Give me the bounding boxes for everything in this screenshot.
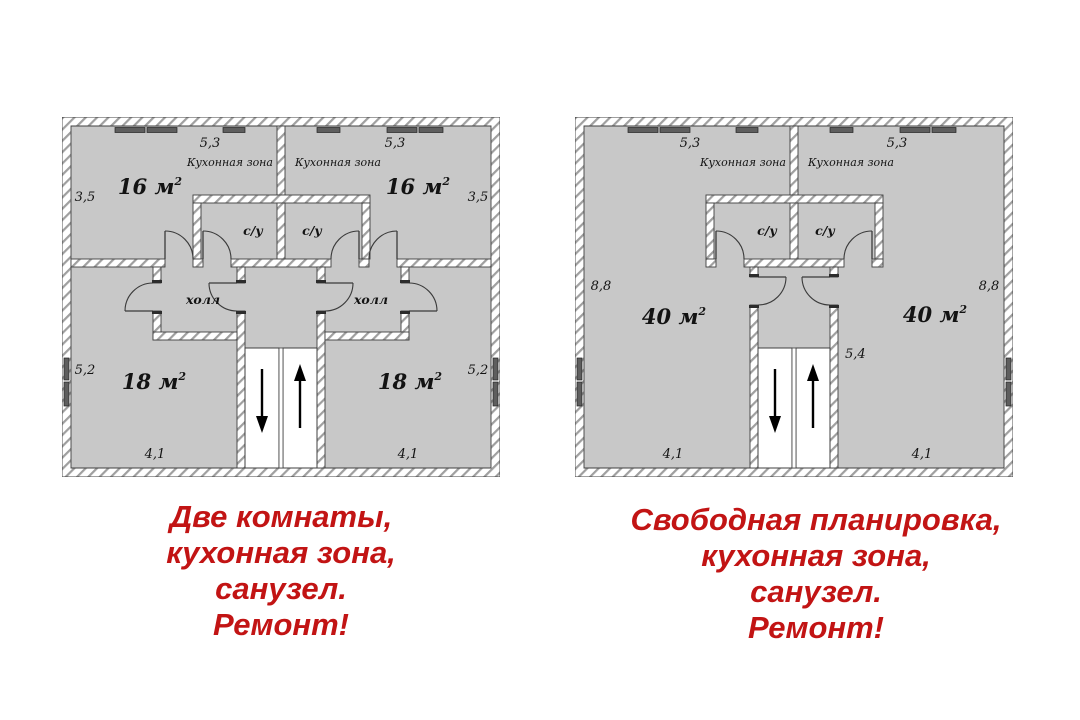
right-plan-caption: Свободная планировка, кухонная зона, сан…	[586, 502, 1046, 646]
room-area-label: 18 м2	[122, 369, 187, 394]
dim-label: 5,3	[200, 136, 221, 151]
caption-line: санузел.	[586, 574, 1046, 610]
dim-label: 3,5	[75, 190, 96, 205]
kitchen-zone-label: Кухонная зона	[699, 156, 786, 169]
dim-label: 5,3	[887, 136, 908, 151]
bathroom-label: с/у	[757, 223, 777, 238]
caption-line: Ремонт!	[586, 610, 1046, 646]
dim-label: 5,2	[468, 363, 489, 378]
dim-label: 4,1	[911, 447, 933, 462]
hall-label: холл	[353, 292, 388, 307]
dim-label: 5,4	[845, 347, 866, 362]
caption-line: кухонная зона,	[62, 535, 500, 571]
dim-label: 4,1	[144, 447, 166, 462]
dim-label: 8,8	[591, 279, 612, 294]
kitchen-zone-label: Кухонная зона	[294, 156, 381, 169]
dim-label: 5,3	[680, 136, 701, 151]
kitchen-zone-label: Кухонная зона	[186, 156, 273, 169]
room-area-label: 40 м2	[903, 302, 968, 327]
staircase	[758, 348, 830, 468]
dim-label: 4,1	[662, 447, 684, 462]
advert-image: 5,3 5,3 Кухонная зона Кухонная зона 16 м…	[0, 0, 1080, 720]
caption-line: кухонная зона,	[586, 538, 1046, 574]
dim-label: 8,8	[979, 279, 1000, 294]
left-plan-caption: Две комнаты, кухонная зона, санузел. Рем…	[62, 499, 500, 643]
dim-label: 5,2	[75, 363, 96, 378]
staircase	[245, 348, 317, 468]
bathroom-label: с/у	[243, 223, 263, 238]
dim-label: 4,1	[397, 447, 419, 462]
room-area-label: 16 м2	[118, 174, 183, 199]
room-area-label: 18 м2	[378, 369, 443, 394]
caption-line: Ремонт!	[62, 607, 500, 643]
bathroom-label: с/у	[302, 223, 322, 238]
caption-line: санузел.	[62, 571, 500, 607]
caption-line: Две комнаты,	[62, 499, 500, 535]
dim-label: 3,5	[468, 190, 489, 205]
bathroom-label: с/у	[815, 223, 835, 238]
floor-plan-two-rooms: 5,3 5,3 Кухонная зона Кухонная зона 16 м…	[62, 117, 500, 477]
dim-label: 5,3	[385, 136, 406, 151]
caption-line: Свободная планировка,	[586, 502, 1046, 538]
hall-label: холл	[185, 292, 220, 307]
room-area-label: 16 м2	[386, 174, 451, 199]
floor-plan-open-layout: 5,3 5,3 Кухонная зона Кухонная зона 8,8 …	[575, 117, 1013, 477]
room-area-label: 40 м2	[642, 304, 707, 329]
kitchen-zone-label: Кухонная зона	[807, 156, 894, 169]
